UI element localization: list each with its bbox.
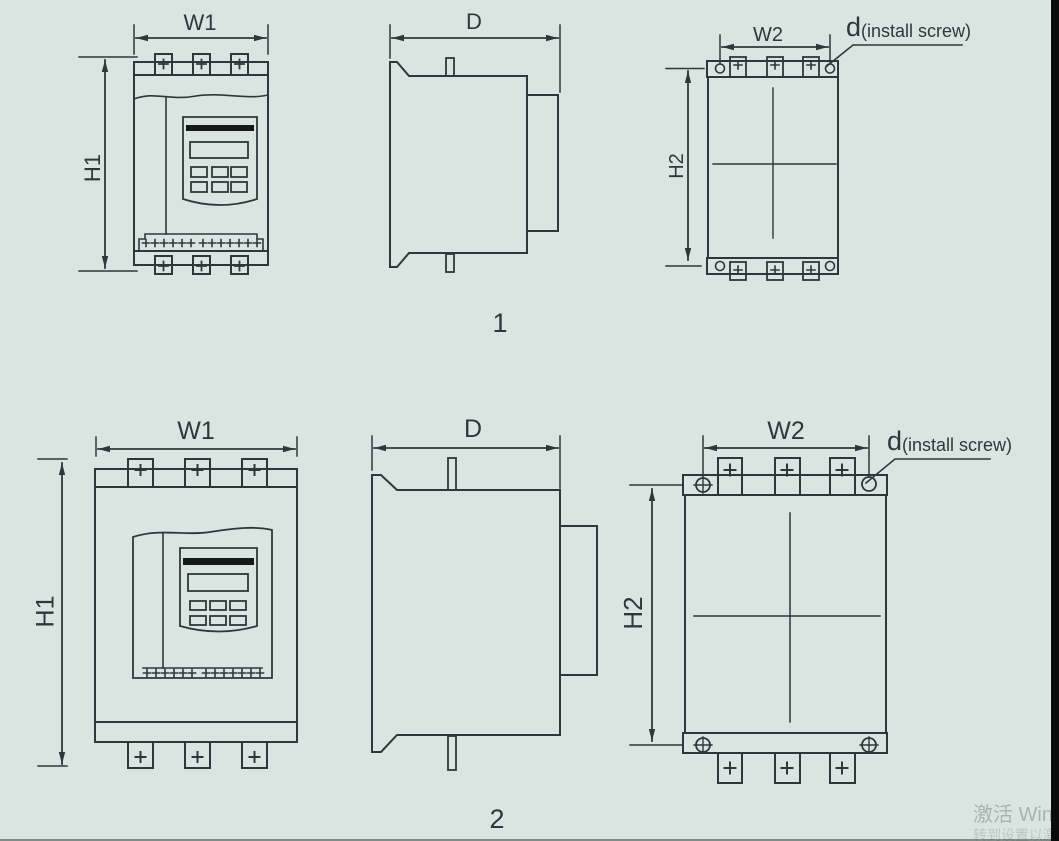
fig1-front-height-dim-label: H1 — [82, 128, 104, 208]
fig2-back-width-dim-label: W2 — [746, 419, 826, 444]
figure2-back-view-drawing — [630, 436, 990, 783]
right-black-border — [1051, 0, 1059, 841]
fig2-back-height-dim-label: H2 — [620, 576, 646, 650]
activate-windows-watermark: 激活 Win 转到设置以激活 Windows — [973, 804, 1059, 841]
fig2-screw-note-text: (install screw) — [902, 428, 1012, 457]
figure2-side-view-drawing — [372, 436, 597, 770]
fig1-side-depth-dim-label: D — [434, 11, 514, 33]
fig1-screw-note-text: (install screw) — [861, 14, 971, 43]
fig2-front-height-dim-label: H1 — [34, 572, 59, 652]
fig2-screw-dim-letter: d — [887, 428, 902, 455]
figure1-side-view-drawing — [390, 25, 560, 272]
fig2-install-screw-note: d(install screw) — [887, 428, 1012, 457]
figure2-number: 2 — [467, 806, 527, 833]
fig1-install-screw-note: d(install screw) — [846, 14, 971, 43]
fig2-side-depth-dim-label: D — [433, 417, 513, 442]
figure1-number: 1 — [470, 310, 530, 337]
figure1-front-view-drawing — [79, 25, 268, 274]
fig1-screw-dim-letter: d — [846, 14, 861, 41]
fig1-back-height-dim-label: H2 — [667, 136, 687, 196]
fig2-front-width-dim-label: W1 — [156, 419, 236, 444]
watermark-line1: 激活 Win — [973, 804, 1059, 827]
dimension-drawing-sheet: W1 H1 D W2 H2 d(install screw) 1 W1 H1 D… — [0, 0, 1059, 841]
fig1-front-width-dim-label: W1 — [160, 12, 240, 34]
figure1-back-view-drawing — [666, 35, 962, 280]
figure2-front-view-drawing — [38, 437, 297, 768]
fig1-back-width-dim-label: W2 — [728, 25, 808, 45]
